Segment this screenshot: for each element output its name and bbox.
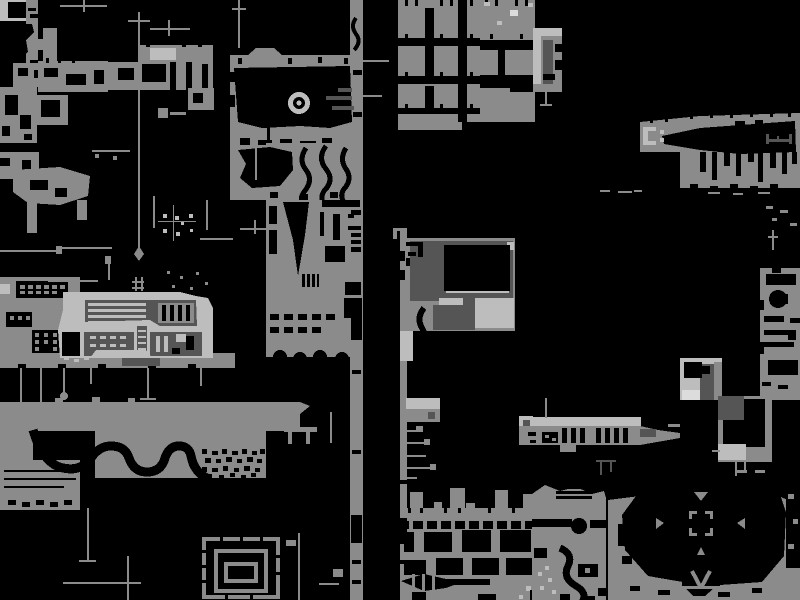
wires-and-marks-shape <box>238 0 240 48</box>
machinery-platform-shape <box>172 348 180 354</box>
nested-box-structure-shape <box>260 537 263 545</box>
top-right-cave-shape <box>730 184 738 188</box>
wires-and-marks-shape <box>298 533 300 600</box>
wires-and-marks-shape <box>190 287 193 290</box>
right-edge-strip-shape <box>768 360 798 375</box>
nested-box-structure-shape <box>202 565 210 568</box>
mid-band-terrain-shape <box>53 347 57 351</box>
top-middle-rooms-shape <box>398 76 480 84</box>
grid-rooms-structure-shape <box>451 521 455 529</box>
pipe-column-mid-shape <box>428 412 435 419</box>
mid-room-structure <box>400 238 515 362</box>
small-tower-structure-shape <box>533 84 562 92</box>
wires-and-marks-shape <box>48 280 98 282</box>
pipe-column-marks-shape <box>351 244 361 247</box>
grid-rooms-structure-shape <box>500 530 531 552</box>
grid-rooms-structure-shape <box>424 532 452 552</box>
upper-left-terrain-shape <box>94 70 104 84</box>
upper-left-terrain-shape <box>77 200 87 220</box>
pipe-column-marks-shape <box>352 580 361 584</box>
upper-left-terrain-shape <box>20 115 31 129</box>
grid-rooms-structure-shape <box>432 574 435 591</box>
lower-left-terrain-shape <box>205 458 211 463</box>
machinery-platform-shape <box>74 359 79 362</box>
wires-and-marks-shape <box>132 287 144 289</box>
upper-left-terrain-shape <box>198 43 202 47</box>
top-right-cave-shape <box>660 130 664 134</box>
bottom-left-mass-shape <box>560 594 570 600</box>
top-right-cave-shape <box>789 134 792 144</box>
upper-left-terrain-shape <box>150 48 176 60</box>
machinery-platform-shape <box>100 286 104 292</box>
top-right-cave-shape <box>782 152 787 174</box>
bottom-right-mass-shape <box>630 586 640 591</box>
wires-and-marks-shape <box>172 285 175 288</box>
wires-and-marks-shape <box>173 205 174 241</box>
grid-rooms-structure-shape <box>466 503 475 510</box>
top-middle-rooms-shape <box>525 0 528 6</box>
wires-and-marks-shape <box>0 250 58 252</box>
top-right-cave <box>640 111 800 189</box>
mid-band-terrain-shape <box>270 314 279 320</box>
mid-band-terrain-shape <box>298 327 307 333</box>
small-room-structure-shape <box>682 390 700 400</box>
grid-rooms-structure-shape <box>434 502 442 510</box>
machinery-platform-shape <box>194 289 198 294</box>
wires-and-marks-shape <box>668 424 680 427</box>
conveyor-structure-shape <box>519 417 641 426</box>
conveyor-structure-shape <box>596 428 601 443</box>
top-middle-rooms-shape <box>490 34 493 39</box>
conveyor-structure-shape <box>580 428 585 443</box>
upper-left-terrain-shape <box>142 64 166 82</box>
grid-rooms-structure-shape <box>450 488 465 510</box>
wires-and-marks-shape <box>600 190 610 192</box>
wires-and-marks-shape <box>196 272 199 275</box>
bottom-left-mass-shape <box>585 568 590 573</box>
nested-box-structure-shape <box>202 550 210 553</box>
top-middle-rooms-shape <box>520 34 523 39</box>
machinery-platform-shape <box>186 336 194 350</box>
lower-left-terrain-shape <box>251 473 256 477</box>
conveyor-structure-shape <box>614 428 619 443</box>
machinery-platform-shape <box>62 332 80 356</box>
lower-left-terrain-shape <box>260 449 265 454</box>
machinery-platform-shape <box>138 342 146 344</box>
top-right-cave-shape <box>770 152 776 168</box>
conveyor-structure-shape <box>552 438 556 441</box>
grid-rooms-structure-shape <box>409 521 413 529</box>
small-tower-structure <box>533 28 562 106</box>
nested-box-structure-shape <box>274 572 282 575</box>
wires-and-marks-shape <box>735 462 737 476</box>
top-right-cave-shape <box>710 112 713 118</box>
mid-band-terrain-shape <box>44 285 49 289</box>
wires-and-marks-shape <box>163 214 167 218</box>
wires-and-marks-shape <box>288 432 292 444</box>
right-edge-strip <box>760 268 800 400</box>
lower-left-terrain <box>0 397 310 510</box>
upper-left-terrain-shape <box>146 42 150 47</box>
wires-and-marks-shape <box>545 398 547 418</box>
grid-rooms-structure <box>401 488 535 600</box>
grid-rooms-structure-shape <box>507 521 511 529</box>
mid-band-terrain-shape <box>284 327 293 333</box>
grid-rooms-structure-shape <box>479 521 483 529</box>
conveyor-structure-shape <box>562 428 567 443</box>
wires-and-marks-shape <box>416 426 423 432</box>
lower-left-terrain-shape <box>22 502 30 507</box>
lower-left-terrain-shape <box>128 398 135 402</box>
machinery-platform-shape <box>88 303 146 306</box>
wires-and-marks-shape <box>758 192 770 194</box>
upper-left-terrain-shape <box>13 167 90 205</box>
wires-and-marks-shape <box>83 0 85 12</box>
left-mid-terrain-shape <box>317 274 319 287</box>
machinery-platform-shape <box>88 315 146 318</box>
lower-left-terrain-shape <box>234 468 239 472</box>
top-middle-rooms-shape <box>398 108 480 114</box>
small-tower-structure-shape <box>540 104 552 106</box>
machine-cavity-block-shape <box>230 95 235 107</box>
wires-and-marks-shape <box>175 216 179 220</box>
top-middle-rooms-shape <box>405 72 408 77</box>
machinery-platform-shape <box>156 336 160 352</box>
mid-room-structure-shape <box>406 258 410 266</box>
upper-left-terrain-shape <box>66 74 86 85</box>
machine-cavity-block-shape <box>326 96 352 100</box>
upper-left-terrain-shape <box>24 134 32 140</box>
pipe-column-marks-shape <box>400 518 407 544</box>
top-middle-rooms-shape <box>405 34 408 39</box>
wires-and-marks-shape <box>296 420 300 427</box>
mid-band-terrain-shape <box>44 333 48 337</box>
nested-box-structure-shape <box>240 537 243 545</box>
top-middle-rooms-shape <box>405 104 408 109</box>
mid-band-terrain-shape <box>284 314 293 320</box>
small-tower-structure-shape <box>545 92 547 106</box>
top-middle-rooms-shape <box>425 46 434 76</box>
left-mid-terrain-shape <box>333 214 340 240</box>
bottom-left-mass-shape <box>534 548 547 558</box>
mid-band-terrain-shape <box>20 291 25 294</box>
top-middle-rooms-shape <box>480 50 535 75</box>
lower-left-terrain-shape <box>207 474 212 478</box>
machine-cavity-block-shape <box>344 58 348 64</box>
mid-band-terrain-shape <box>53 333 57 337</box>
wires-and-marks-shape <box>20 368 22 414</box>
mid-band-terrain-shape <box>188 364 196 368</box>
bottom-right-mass-shape <box>658 590 670 595</box>
right-edge-strip-shape <box>764 342 794 347</box>
top-right-cave-shape <box>758 152 763 182</box>
wires-and-marks-shape <box>105 256 111 264</box>
wires-and-marks-shape <box>306 432 310 444</box>
upper-left-terrain-shape <box>5 95 18 115</box>
wires-and-marks-shape <box>333 569 343 577</box>
wires-and-marks-shape <box>424 439 430 445</box>
top-middle-rooms-shape <box>497 21 502 25</box>
wires-and-marks-shape <box>735 470 747 473</box>
mid-band-terrain-shape <box>28 285 33 289</box>
pipe-column-mid-shape <box>406 398 440 409</box>
mid-band-terrain-shape <box>273 350 287 364</box>
mid-band-terrain-shape <box>10 316 14 320</box>
top-middle-rooms-shape <box>440 34 443 39</box>
top-right-cave-shape <box>650 118 653 123</box>
top-left-structures-shape <box>18 68 28 76</box>
machinery-platform-shape <box>100 336 106 339</box>
wires-and-marks-shape <box>90 368 92 384</box>
mid-band-terrain-shape <box>44 340 48 344</box>
machinery-platform-shape <box>64 357 69 360</box>
wires-and-marks-shape <box>772 218 777 221</box>
wires-and-marks-shape <box>92 150 130 152</box>
machinery-platform-shape <box>178 305 182 321</box>
mid-band-terrain-shape <box>52 291 57 294</box>
mid-room-structure-shape <box>400 270 405 280</box>
mid-band-terrain-shape <box>36 291 41 294</box>
bottom-left-mass-shape <box>571 518 587 534</box>
wires-and-marks-shape <box>330 412 332 443</box>
wires-and-marks-shape <box>708 192 720 194</box>
upper-left-terrain-shape <box>46 58 49 63</box>
lower-left-terrain-shape <box>232 451 238 455</box>
top-middle-rooms-shape <box>440 72 443 77</box>
wires-and-marks-shape <box>430 464 436 470</box>
bottom-right-mass-shape <box>640 548 653 559</box>
machinery-platform-shape <box>110 336 116 339</box>
wires-and-marks-shape <box>63 368 65 392</box>
mid-band-terrain-shape <box>20 285 25 289</box>
machine-cavity-block-shape <box>230 72 235 82</box>
lower-left-terrain-shape <box>212 468 218 472</box>
upper-left-terrain-shape <box>41 100 60 117</box>
pipe-column-marks-shape <box>352 560 361 564</box>
top-right-cave-shape <box>766 134 769 144</box>
lower-left-terrain-shape <box>216 459 221 463</box>
mid-band-terrain-shape <box>35 340 39 344</box>
lower-left-terrain-shape <box>0 431 33 465</box>
top-middle-rooms-shape <box>515 0 518 6</box>
top-right-cave-shape <box>690 184 698 188</box>
machine-cavity-block-shape <box>353 112 362 117</box>
machine-cavity-block-shape <box>318 57 322 63</box>
bottom-right-mass-shape <box>752 588 762 593</box>
bottom-right-mass-shape <box>622 556 632 564</box>
top-middle-rooms-shape <box>470 34 473 39</box>
top-right-cave-shape <box>643 141 656 145</box>
right-edge-strip-shape <box>770 294 788 304</box>
grid-rooms-structure-shape <box>472 558 499 575</box>
wires-and-marks-shape <box>60 247 112 249</box>
mid-room-structure-shape <box>444 245 510 291</box>
top-middle-rooms-shape <box>398 0 480 122</box>
machine-cavity-block-shape <box>240 138 250 145</box>
machinery-platform-shape <box>138 348 146 350</box>
mid-band-terrain-shape <box>326 314 335 320</box>
right-edge-strip-shape <box>760 300 764 310</box>
grid-rooms-structure-shape <box>519 595 523 599</box>
conveyor-structure-shape <box>571 428 576 443</box>
machine-cavity-block-shape <box>267 125 270 141</box>
lower-left-terrain-shape <box>219 475 224 478</box>
lower-left-terrain-shape <box>237 459 242 463</box>
mid-band-terrain-shape <box>28 291 33 294</box>
top-middle-rooms-shape <box>495 0 498 6</box>
machine-cavity-block <box>230 48 362 145</box>
machinery-platform-shape <box>90 336 96 339</box>
wires-and-marks-shape <box>132 281 144 283</box>
mid-band-terrain-shape <box>312 314 321 320</box>
machine-cavity-block-shape <box>338 88 352 92</box>
wires-and-marks-shape <box>168 20 170 36</box>
machinery-platform-shape <box>182 287 186 292</box>
wires-and-marks-shape <box>181 222 184 225</box>
nested-box-structure-shape <box>250 593 253 600</box>
machinery-platform-shape <box>112 286 116 292</box>
machinery-platform-shape <box>138 330 146 332</box>
wires-and-marks-shape <box>163 229 167 233</box>
wires-and-marks-shape <box>176 232 180 236</box>
conveyor-structure-shape <box>542 432 558 443</box>
lower-left-terrain-shape <box>4 486 64 488</box>
mid-band-terrain-shape <box>270 327 279 333</box>
lower-left-terrain-shape <box>8 500 16 505</box>
machinery-platform-shape <box>90 344 96 347</box>
wires-and-marks-shape <box>755 470 765 473</box>
lower-left-terrain-shape <box>226 457 232 462</box>
top-right-cave-shape <box>700 152 706 172</box>
bottom-right-mass-shape <box>682 566 720 586</box>
wires-and-marks-shape <box>232 8 246 10</box>
mid-room-structure-shape <box>408 252 416 256</box>
grid-rooms-structure-shape <box>410 492 423 510</box>
mid-band-terrain-shape <box>60 285 65 289</box>
right-room-structure-shape <box>718 444 746 460</box>
grid-rooms-structure-shape <box>478 594 496 600</box>
top-middle-rooms-shape <box>470 0 473 6</box>
mid-band-terrain-shape <box>36 285 41 289</box>
nested-box-structure-shape <box>225 593 228 600</box>
grid-rooms-structure-shape <box>404 560 426 575</box>
wires-and-marks-shape <box>733 193 743 195</box>
wires-and-marks-shape <box>240 228 283 230</box>
grid-rooms-structure-shape <box>444 508 447 513</box>
top-middle-rooms-shape <box>458 0 467 38</box>
wires-and-marks-shape <box>147 368 149 400</box>
grid-rooms-structure-shape <box>420 508 423 513</box>
lower-left-terrain-shape <box>252 451 257 455</box>
lower-left-terrain-shape <box>4 478 76 480</box>
lower-left-terrain-shape <box>212 451 218 455</box>
upper-left-terrain-shape <box>193 93 203 103</box>
mid-band-terrain-shape <box>35 347 39 351</box>
bottom-left-mass-shape <box>556 496 592 499</box>
top-middle-rooms-shape <box>398 120 462 130</box>
grid-rooms-structure-shape <box>506 558 533 575</box>
pipe-column-mid-shape <box>393 231 397 239</box>
bottom-left-mass-shape <box>545 566 549 570</box>
grid-rooms-structure-shape <box>446 579 490 585</box>
lower-left-terrain-shape <box>300 402 310 414</box>
upper-left-terrain-shape <box>182 42 186 47</box>
machinery-platform-shape <box>110 344 116 347</box>
lower-left-terrain-shape <box>244 466 250 471</box>
top-middle-rooms-shape <box>470 104 473 109</box>
machinery-platform-shape <box>168 286 172 292</box>
wires-and-marks-shape <box>200 238 233 240</box>
machinery-platform-shape <box>100 344 106 347</box>
top-left-structures-shape <box>30 60 38 63</box>
wires-and-marks-shape <box>406 477 417 479</box>
top-middle-rooms-shape <box>415 0 418 6</box>
machinery-platform-shape <box>122 358 160 366</box>
wires-and-marks-shape <box>113 156 117 160</box>
right-room-structure-shape <box>718 396 744 420</box>
wires-and-marks-shape <box>712 450 720 452</box>
small-room-structure <box>680 358 722 400</box>
top-middle-rooms-shape <box>440 104 443 109</box>
mid-band-terrain-shape <box>18 316 22 320</box>
grid-rooms-structure-shape <box>493 521 497 529</box>
grid-rooms-structure-shape <box>437 521 441 529</box>
pipe-column-marks-shape <box>352 450 361 454</box>
top-left-structures-shape <box>30 14 44 18</box>
lower-left-terrain-shape <box>257 459 262 463</box>
wires-and-marks-shape <box>140 398 156 400</box>
machinery-platform-shape <box>170 305 174 321</box>
top-right-cave-shape <box>736 152 741 176</box>
upper-left-terrain-shape <box>0 158 10 166</box>
right-edge-strip-shape <box>762 382 771 386</box>
wires-and-marks-shape <box>205 282 208 285</box>
mid-band-terrain-shape <box>58 364 66 368</box>
top-middle-rooms-shape <box>484 2 490 6</box>
lower-left-terrain-shape <box>202 467 207 472</box>
left-mid-terrain-shape <box>307 274 310 287</box>
pipe-column-marks-shape <box>351 230 361 233</box>
bottom-right-mass-shape <box>788 494 794 499</box>
pipe-column-marks-shape <box>351 237 361 240</box>
bottom-left-mass <box>532 485 610 600</box>
upper-left-terrain-shape <box>186 62 192 90</box>
wires-and-marks-shape <box>610 462 612 472</box>
top-middle-rooms-shape <box>458 84 467 122</box>
squiggle-zone <box>230 143 363 208</box>
grid-rooms-structure-shape <box>412 574 415 591</box>
grid-rooms-structure-shape <box>436 558 463 575</box>
right-edge-strip-shape <box>764 316 784 322</box>
lower-left-terrain-shape <box>247 457 253 462</box>
top-right-cave-shape <box>712 152 717 180</box>
top-right-cave-shape <box>750 186 758 189</box>
wires-and-marks-shape <box>158 221 196 222</box>
wires-and-marks-shape <box>108 264 110 280</box>
wires-and-marks-shape <box>138 12 140 248</box>
mid-room-structure-shape <box>418 246 423 257</box>
conveyor-structure-shape <box>560 445 576 452</box>
left-mid-terrain-shape <box>320 212 324 236</box>
lower-left-terrain-shape <box>242 449 247 454</box>
right-edge-strip-shape <box>790 318 800 323</box>
top-middle-rooms-shape <box>528 3 533 7</box>
bottom-left-mass-shape <box>540 586 544 590</box>
small-tower-structure-shape <box>555 44 562 52</box>
wires-and-marks-shape <box>406 442 426 444</box>
machinery-platform-shape <box>138 336 146 338</box>
nested-box-structure-shape <box>228 566 254 579</box>
